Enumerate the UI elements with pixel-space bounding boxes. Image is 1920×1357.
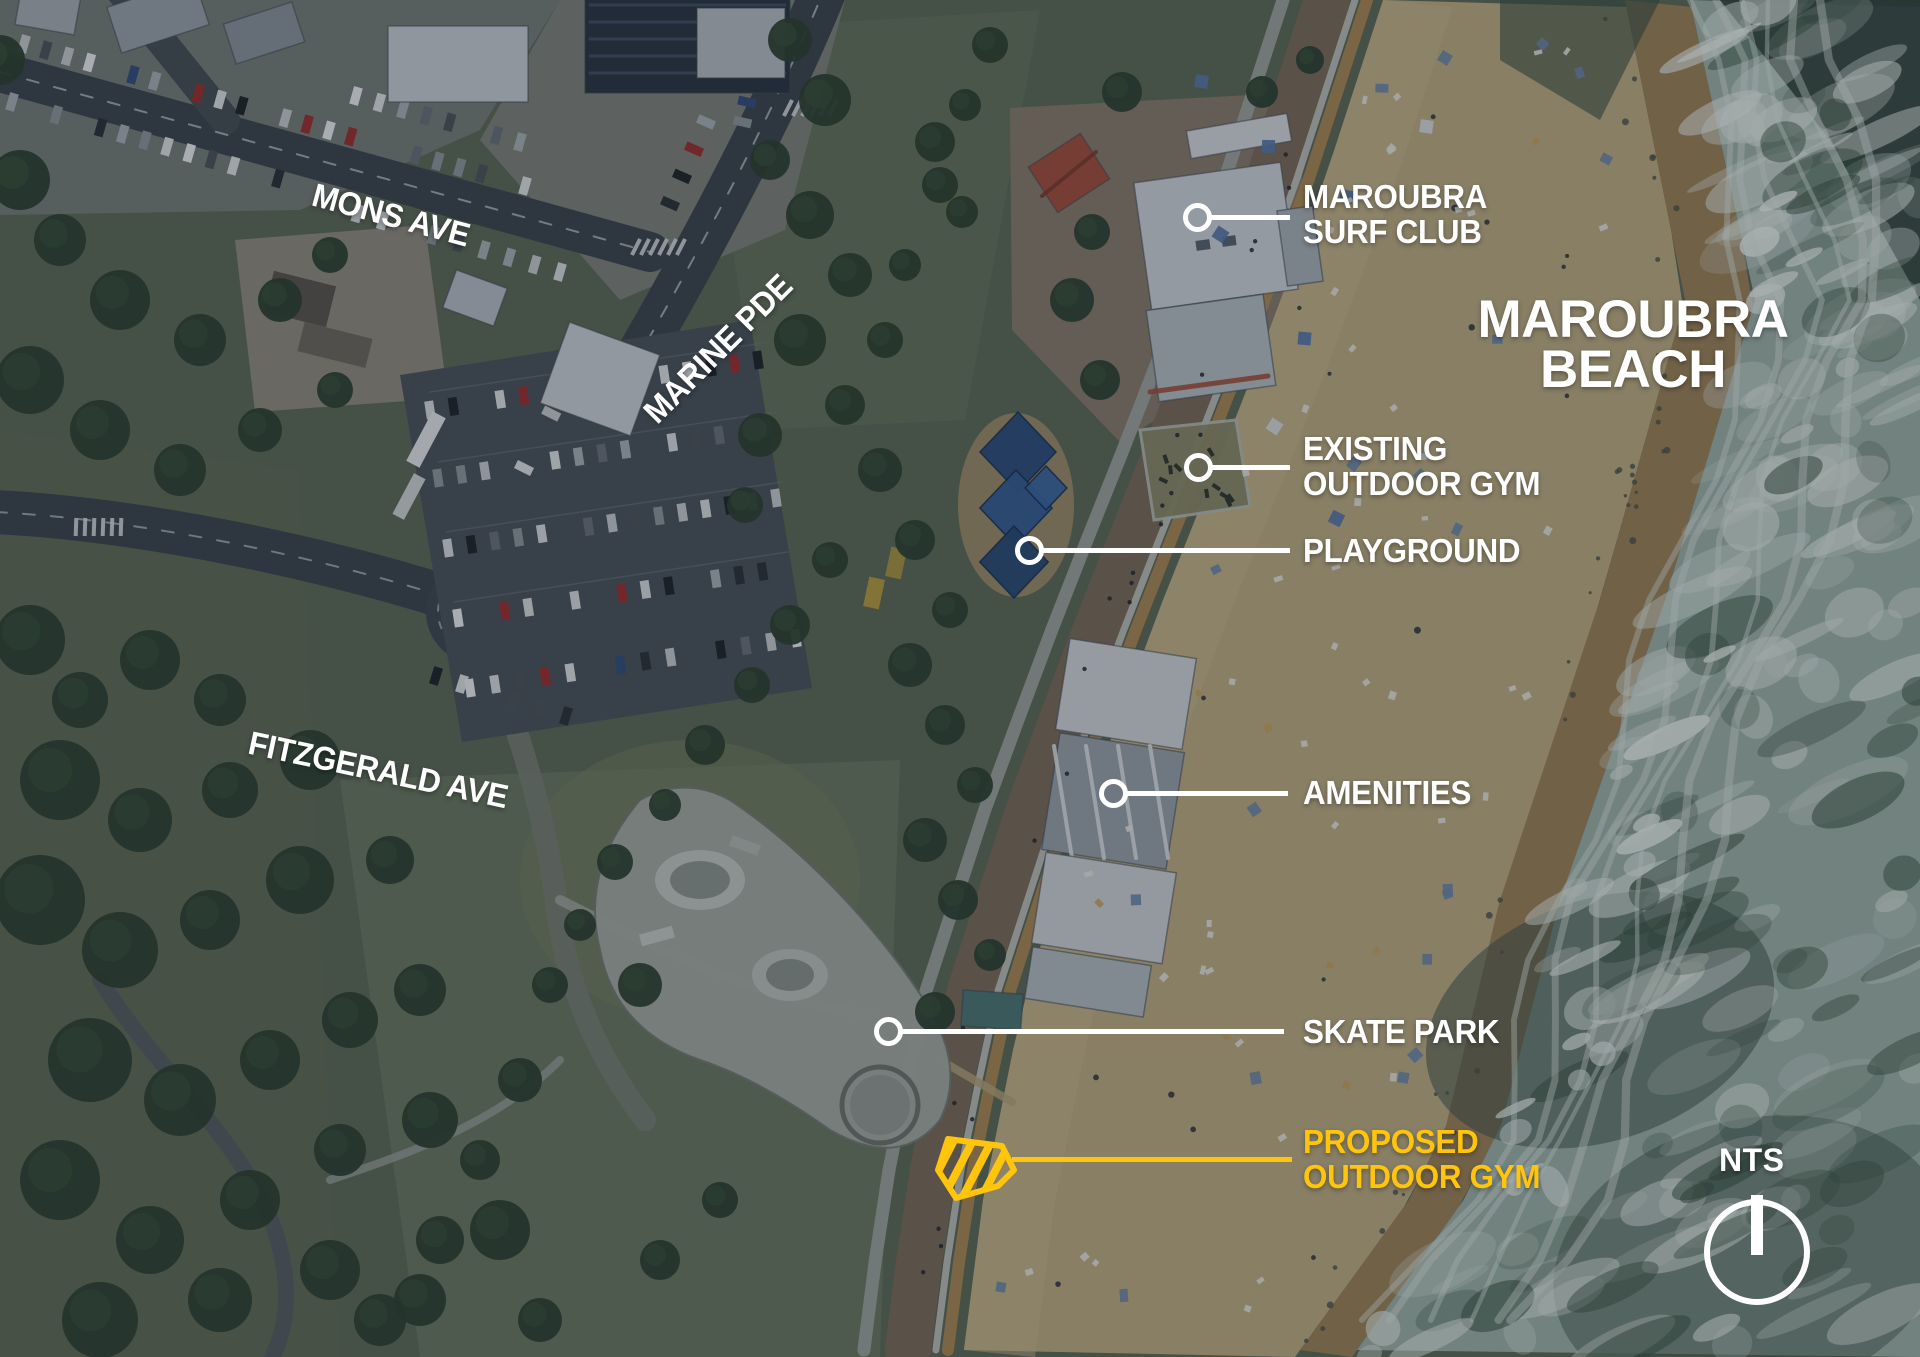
beach-title-line2: BEACH xyxy=(1443,345,1823,395)
surf-club-marker-icon xyxy=(1183,203,1212,232)
scale-label: NTS xyxy=(1719,1142,1785,1179)
playground-marker-icon xyxy=(1015,536,1044,565)
leader-line xyxy=(1210,215,1290,220)
leader-line xyxy=(1211,465,1290,470)
site-map: MONS AVE MARINE PDE FITZGERALD AVE MAROU… xyxy=(0,0,1920,1357)
beach-title: MAROUBRA BEACH xyxy=(1443,295,1823,395)
existing-gym-marker-icon xyxy=(1184,453,1213,482)
aerial-photo xyxy=(0,0,1920,1357)
skate-park-marker-icon xyxy=(874,1017,903,1046)
beach-title-line1: MAROUBRA xyxy=(1443,295,1823,345)
leader-line xyxy=(901,1029,1284,1034)
leader-line xyxy=(1042,548,1290,553)
leader-line xyxy=(1126,791,1288,796)
north-arrow-icon xyxy=(1697,1192,1817,1314)
leader-line xyxy=(1012,1157,1292,1162)
amenities-marker-icon xyxy=(1099,779,1128,808)
